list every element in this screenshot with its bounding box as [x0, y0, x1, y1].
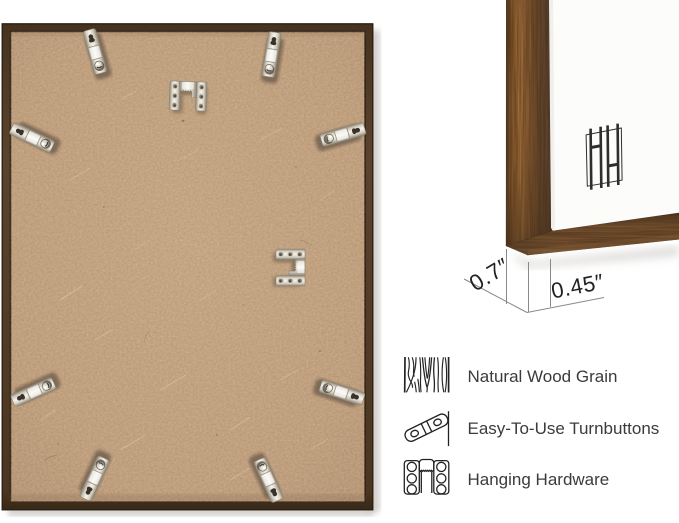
svg-text:Hanging Hardware: Hanging Hardware — [468, 470, 610, 489]
svg-text:Natural Wood Grain: Natural Wood Grain — [468, 367, 618, 386]
svg-text:Easy-To-Use Turnbuttons: Easy-To-Use Turnbuttons — [468, 419, 660, 438]
